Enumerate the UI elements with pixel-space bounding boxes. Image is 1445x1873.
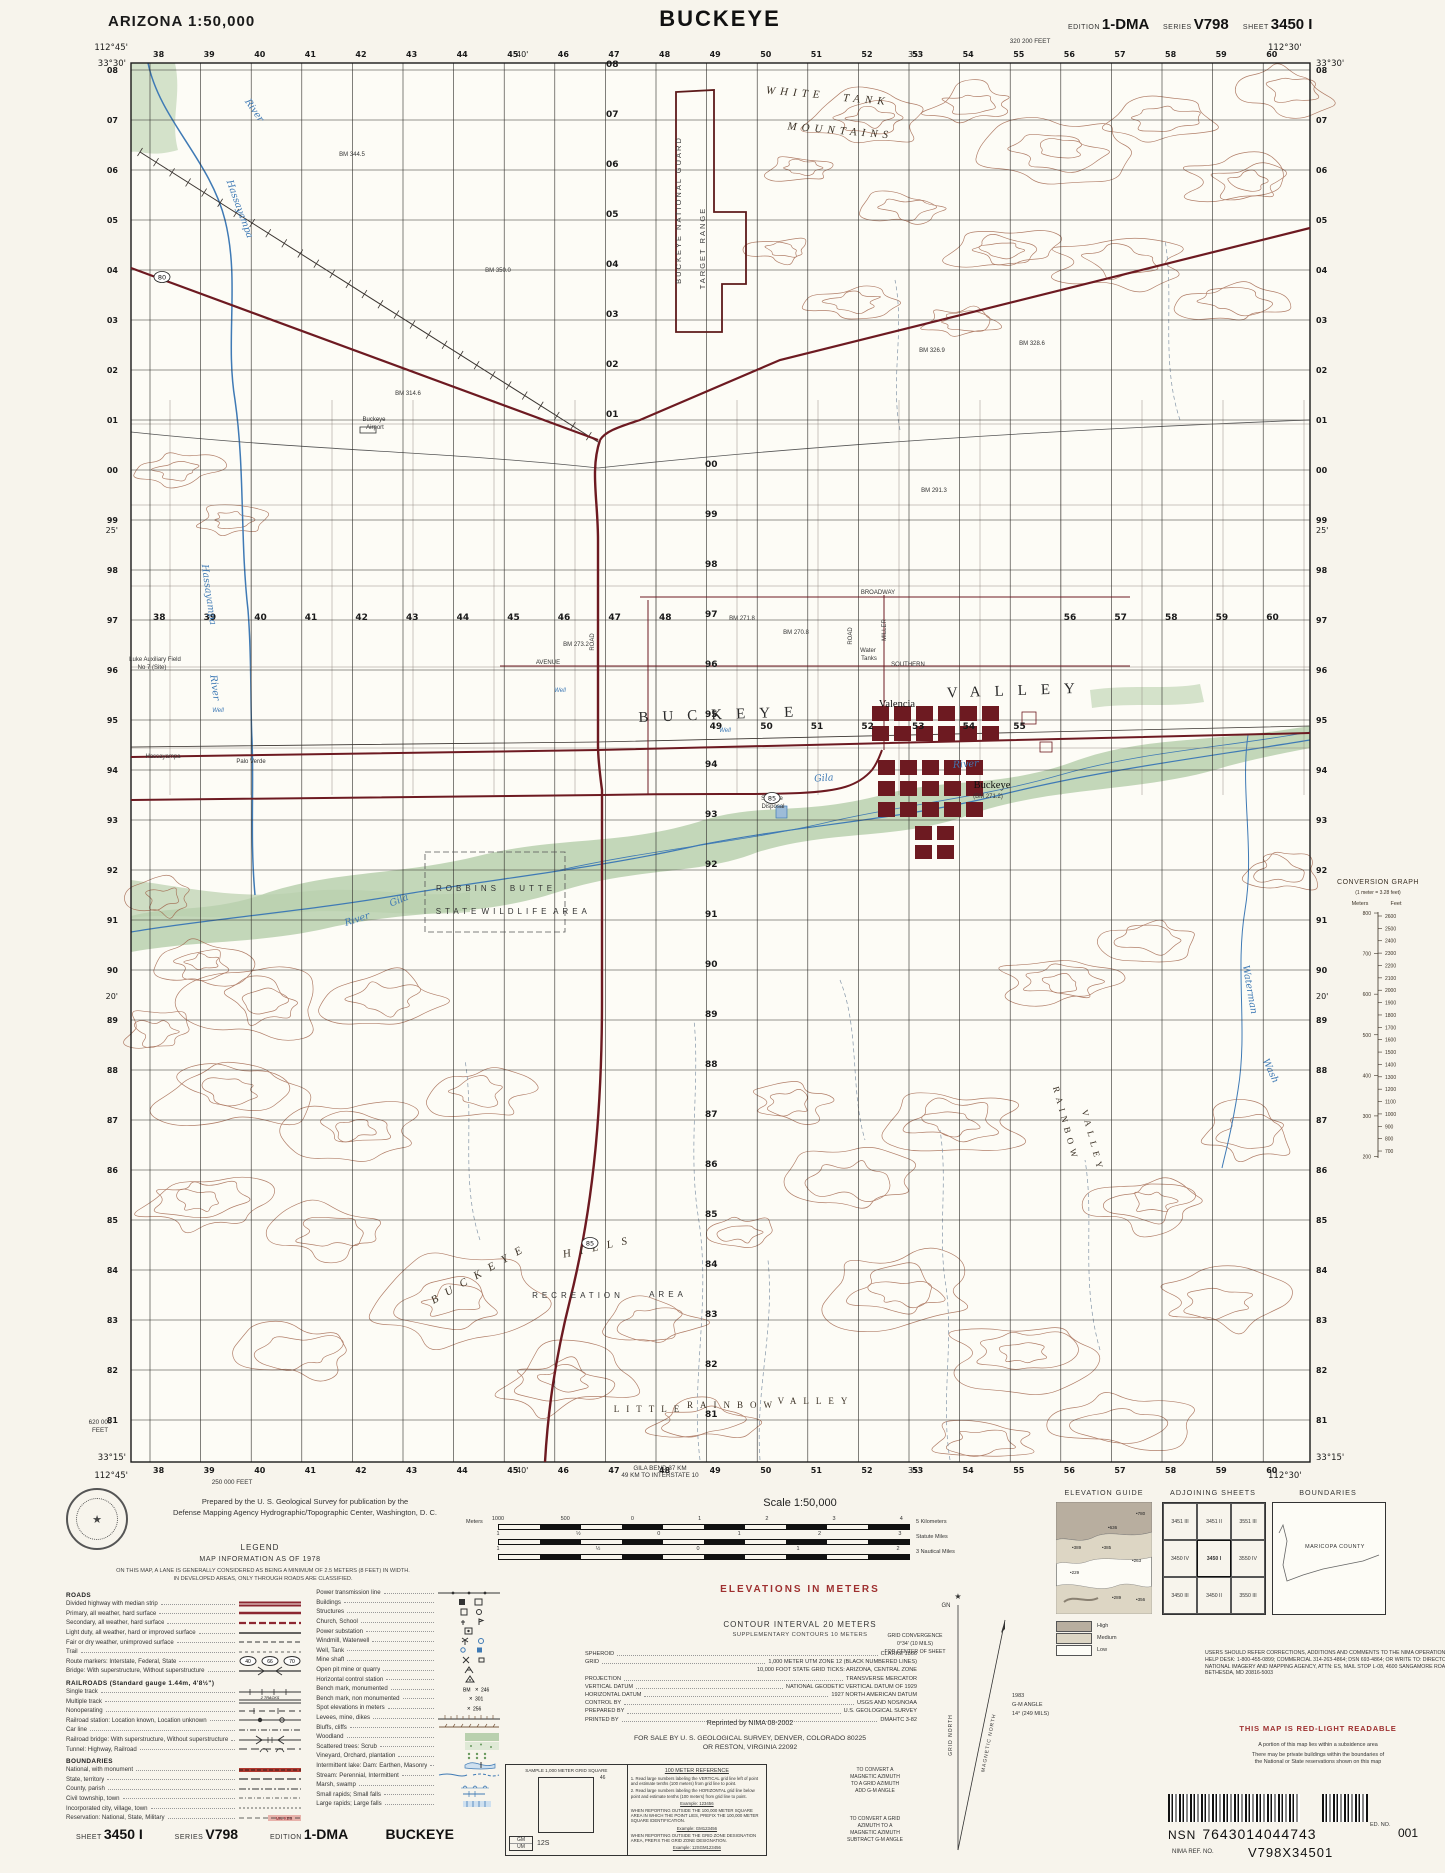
legend-symbol-levee xyxy=(437,1713,501,1723)
legend-item-features: Power transmission line xyxy=(316,1588,501,1598)
map-label-bm-270-8: BM 270.8 xyxy=(783,630,809,636)
legend-symbol-hcs xyxy=(437,1674,501,1684)
map-label-recreation: RECREATION xyxy=(532,1291,624,1300)
map-label-bm-273-2: BM 273.2 xyxy=(563,642,589,648)
legend-swatch xyxy=(1056,1633,1092,1644)
svg-text:25': 25' xyxy=(106,526,118,535)
legend-item-features: Levees, mine, dikes xyxy=(316,1713,501,1723)
svg-text:33°30': 33°30' xyxy=(98,59,126,69)
svg-text:03: 03 xyxy=(107,316,118,325)
map-label-water: Water xyxy=(860,648,876,654)
legend-leader xyxy=(350,1726,435,1728)
datum-label: HORIZONTAL DATUM xyxy=(585,1691,641,1699)
svg-text:41: 41 xyxy=(305,50,317,59)
legend-item-roads: Car line xyxy=(66,1725,302,1735)
map-label-robbins: ROBBINS xyxy=(436,884,500,893)
legend-symbol-light xyxy=(238,1628,302,1638)
scale-title: Scale 1:50,000 xyxy=(700,1497,900,1509)
legend-leader xyxy=(159,1612,235,1614)
svg-text:112°45': 112°45' xyxy=(94,1471,128,1481)
svg-text:47: 47 xyxy=(608,50,619,59)
svg-text:40: 40 xyxy=(254,50,266,59)
map-label-bm-314-6: BM 314.6 xyxy=(395,391,421,397)
svg-text:57: 57 xyxy=(1114,1466,1125,1475)
map-label-bm-326-9: BM 326.9 xyxy=(919,348,945,354)
legend-leader xyxy=(107,1778,235,1780)
scale-tick: 2 xyxy=(818,1531,821,1537)
legend-info: MAP INFORMATION AS OF 1978 xyxy=(60,1556,460,1563)
legend-leader xyxy=(366,1630,434,1632)
adjoining-sheet-3550-iv: 3550 IV xyxy=(1231,1540,1265,1577)
svg-text:58: 58 xyxy=(1165,613,1178,623)
svg-text:85: 85 xyxy=(705,1210,718,1220)
legend-item-label: Incorporated city, village, town xyxy=(66,1805,148,1812)
elevation-guide-legend: HighMediumLow xyxy=(1056,1620,1117,1656)
svg-text:81: 81 xyxy=(1316,1416,1328,1425)
adjoining-sheet-3551-iii: 3551 III xyxy=(1231,1503,1265,1540)
sample-grid-title: SAMPLE 1,000 METER GRID SQUARE xyxy=(509,1768,624,1773)
legend-leader xyxy=(140,1748,235,1750)
svg-text:1400: 1400 xyxy=(1385,1062,1396,1068)
map-label-area: AREA xyxy=(553,907,591,916)
elevation-guide-title: ELEVATION GUIDE xyxy=(1046,1488,1162,1497)
legend-item-label: Fair or dry weather, unimproved surface xyxy=(66,1639,174,1646)
svg-text:89: 89 xyxy=(705,1010,718,1020)
svg-text:TO CONVERT A GRID: TO CONVERT A GRID xyxy=(850,1816,901,1822)
svg-text:40': 40' xyxy=(516,50,528,59)
reference-line: Example: GM123456 xyxy=(631,1826,763,1831)
svg-text:14° (249 MILS): 14° (249 MILS) xyxy=(1012,1711,1049,1717)
legend-item-features: Buildings xyxy=(316,1598,501,1608)
svg-text:48: 48 xyxy=(659,50,671,59)
svg-text:82: 82 xyxy=(1316,1366,1327,1375)
svg-text:05: 05 xyxy=(1316,216,1328,225)
sheet-label: SHEET xyxy=(1243,24,1269,31)
map-label-well: Well xyxy=(212,708,224,714)
legend-item-label: Mine shaft xyxy=(316,1656,344,1663)
subsidence-note: A portion of this map lies within a subs… xyxy=(1188,1742,1445,1766)
credits-line1: Prepared by the U. S. Geological Survey … xyxy=(140,1496,470,1507)
datum-leader xyxy=(627,1713,840,1714)
legend-item-label: Single track xyxy=(66,1688,98,1695)
svg-text:57: 57 xyxy=(1114,613,1127,623)
elevation-guide-legend-medium: Medium xyxy=(1056,1632,1117,1644)
svg-text:85: 85 xyxy=(768,794,776,802)
svg-text:51: 51 xyxy=(811,1466,823,1475)
legend-swatch xyxy=(1056,1621,1092,1632)
users-correction-note: USERS SHOULD REFER CORRECTIONS, ADDITION… xyxy=(1205,1650,1445,1677)
subsidence-line: A portion of this map lies within a subs… xyxy=(1188,1742,1445,1749)
legend-leader xyxy=(151,1807,236,1809)
route-shield-85: 85 xyxy=(582,1238,598,1249)
legend-item-features: Small rapids; Small falls xyxy=(316,1789,501,1799)
map-label--bm-271-2-: (BM 271.2) xyxy=(973,794,1003,800)
legend-symbol-substa xyxy=(437,1626,501,1636)
legend-item-label: Secondary, all weather, hard surface xyxy=(66,1619,164,1626)
svg-text:★: ★ xyxy=(954,1592,961,1601)
svg-text:88: 88 xyxy=(705,1060,718,1070)
map-label-no-7-site-: No 7 (Site) xyxy=(138,665,167,671)
legend-swatch-label: Medium xyxy=(1097,1635,1117,1641)
scale-bar-segments xyxy=(498,1539,910,1545)
scale-bars: Meters1000500012345 Kilometers1½0123Stat… xyxy=(470,1516,1030,1561)
svg-text:99: 99 xyxy=(1316,516,1328,525)
legend-item-label: Railroad station: Location known, Locati… xyxy=(66,1717,207,1724)
svg-text:700: 700 xyxy=(1363,952,1372,958)
legend-item-features: Scattered trees: Scrub xyxy=(316,1742,501,1752)
svg-text:20': 20' xyxy=(106,992,118,1001)
legend-swatch-label: High xyxy=(1097,1623,1108,1629)
svg-text:400: 400 xyxy=(1363,1073,1372,1079)
legend-item-roads: Secondary, all weather, hard surface xyxy=(66,1618,302,1628)
legend-leader xyxy=(210,1719,236,1721)
legend-leader xyxy=(372,1640,434,1642)
map-label-well: Well xyxy=(719,728,731,734)
svg-text:52: 52 xyxy=(861,50,872,59)
sheet-value: 3450 I xyxy=(1271,16,1313,33)
legend-item-roads: Route markers: Interstate, Federal, Stat… xyxy=(66,1657,302,1667)
reference-line: WHEN REPORTING OUTSIDE THE GRID ZONE DES… xyxy=(631,1833,763,1843)
svg-text:112°30': 112°30' xyxy=(1268,43,1302,53)
legend-leader xyxy=(359,1784,434,1786)
scale-tick: 2 xyxy=(765,1516,768,1522)
svg-text:1300: 1300 xyxy=(1385,1075,1396,1081)
scale-tick: 0 xyxy=(631,1516,634,1522)
legend-symbol-bndstate xyxy=(238,1774,302,1784)
svg-text:42: 42 xyxy=(355,50,366,59)
svg-text:90: 90 xyxy=(1316,966,1328,975)
datum-leader xyxy=(602,1663,765,1664)
legend-symbol-tunnel xyxy=(238,1744,302,1754)
svg-text:×: × xyxy=(475,1687,479,1693)
svg-text:0°34' (10 MILS): 0°34' (10 MILS) xyxy=(897,1641,933,1647)
scale-bar-2: 1½0123 Nautical Miles xyxy=(470,1546,1030,1561)
sample-grid-box: SAMPLE 1,000 METER GRID SQUARE 46 GM UM … xyxy=(505,1764,628,1856)
legend-leader xyxy=(179,1660,235,1662)
svg-text:88: 88 xyxy=(1316,1066,1328,1075)
svg-text:81: 81 xyxy=(705,1410,718,1420)
map-label-miller: MILLER xyxy=(882,619,888,641)
svg-text:1100: 1100 xyxy=(1385,1100,1396,1106)
svg-text:05: 05 xyxy=(606,210,619,220)
footer-series-value: V798 xyxy=(205,1826,238,1842)
svg-text:59: 59 xyxy=(1216,50,1228,59)
map-label-bm-344-5: BM 344.5 xyxy=(339,152,365,158)
legend-leader xyxy=(373,1717,434,1719)
svg-text:54: 54 xyxy=(963,1466,975,1475)
map-label-broadway: BROADWAY xyxy=(861,590,895,596)
svg-text:55: 55 xyxy=(1013,1466,1025,1475)
svg-text:08: 08 xyxy=(606,60,619,70)
legend-item-roads: Divided highway with median strip xyxy=(66,1599,302,1609)
svg-text:56: 56 xyxy=(1064,613,1077,623)
legend-item-label: Tunnel: Highway, Railroad xyxy=(66,1746,137,1753)
map-label-avenue: AVENUE xyxy=(536,660,560,666)
elevation-guide-legend-high: High xyxy=(1056,1620,1117,1632)
legend-item-roads: National, with monument xyxy=(66,1765,302,1775)
legend-leader xyxy=(385,1803,435,1805)
svg-text:96: 96 xyxy=(705,660,718,670)
svg-text:83: 83 xyxy=(705,1310,718,1320)
svg-text:35': 35' xyxy=(908,1466,920,1475)
svg-text:02: 02 xyxy=(606,360,619,370)
private-line2: the National or State reservations shown… xyxy=(1188,1759,1445,1766)
svg-text:42: 42 xyxy=(355,613,368,623)
datum-leader xyxy=(644,1696,828,1697)
legend-item-label: Intermittent lake: Dam: Earthen, Masonry xyxy=(316,1762,427,1769)
legend-item-roads: Light duty, all weather, hard or improve… xyxy=(66,1628,302,1638)
legend-symbol-rr2: 2 TRACKS xyxy=(238,1696,302,1706)
svg-text:00: 00 xyxy=(705,460,718,470)
legend-item-features: Well, Tank xyxy=(316,1646,501,1656)
legend-item-label: Stream: Perennial, Intermittent xyxy=(316,1772,399,1779)
svg-text:FOR CENTER OF SHEET: FOR CENTER OF SHEET xyxy=(884,1649,946,1655)
legend-item-roads: Primary, all weather, hard surface xyxy=(66,1609,302,1619)
legend-leader xyxy=(199,1632,236,1634)
legend-symbol-windmill xyxy=(437,1636,501,1646)
legend-item-roads: Railroad station: Location known, Locati… xyxy=(66,1716,302,1726)
adjoining-sheet-3450-iv: 3450 IV xyxy=(1163,1540,1197,1577)
map-label-tanks: Tanks xyxy=(861,656,877,662)
scale-tick: 3 xyxy=(833,1516,836,1522)
svg-text:90: 90 xyxy=(107,966,119,975)
legend-leader xyxy=(177,1641,236,1643)
svg-text:40: 40 xyxy=(245,1659,251,1665)
legend-item-features: Stream: Perennial, Intermittent xyxy=(316,1770,501,1780)
legend-leader xyxy=(167,1622,235,1624)
legend-item-label: Bench mark, monumented xyxy=(316,1685,387,1692)
legend-symbol-bndcity xyxy=(238,1803,302,1813)
map-label-valley: VALLEY xyxy=(778,1396,855,1406)
svg-text:98: 98 xyxy=(1316,566,1328,575)
scale-tick: 2 xyxy=(896,1546,899,1552)
legend-symbol-bndcounty xyxy=(238,1784,302,1794)
svg-text:59: 59 xyxy=(1216,1466,1228,1475)
map-label-luke-auxiliary-field: Luke Auxiliary Field xyxy=(129,657,181,663)
nima-ref-label: NIMA REF. NO. xyxy=(1172,1849,1214,1855)
legend-leader xyxy=(123,1797,236,1799)
map-label-buckeye-national-guard: BUCKEYE NATIONAL GUARD xyxy=(674,136,683,284)
legend-symbol-bm2: ×301 xyxy=(437,1693,501,1703)
svg-text:93: 93 xyxy=(705,810,718,820)
datum-label: GRID xyxy=(585,1658,599,1666)
footer-edition-value: 1-DMA xyxy=(304,1826,348,1842)
series-label: SERIES xyxy=(1163,24,1192,31)
svg-text:95: 95 xyxy=(107,716,119,725)
svg-text:83: 83 xyxy=(107,1316,118,1325)
legend-symbol-spot: ×256 xyxy=(437,1703,501,1713)
legend-item-label: Spot elevations in meters xyxy=(316,1704,384,1711)
legend-symbol-trail xyxy=(238,1647,302,1657)
svg-text:2000: 2000 xyxy=(1385,988,1396,994)
svg-text:97: 97 xyxy=(1316,616,1327,625)
legend-symbol-wood xyxy=(437,1732,501,1742)
boundaries-title: BOUNDARIES xyxy=(1272,1488,1384,1497)
legend-symbol-church xyxy=(437,1617,501,1627)
legend-symbol-bm1: BM×246 xyxy=(437,1684,501,1694)
svg-text:86: 86 xyxy=(107,1166,119,1175)
svg-text:1500: 1500 xyxy=(1385,1050,1396,1056)
legend-leader xyxy=(347,1611,434,1613)
elevation-guide-value: •356 xyxy=(1136,1597,1146,1602)
svg-text:04: 04 xyxy=(1316,266,1328,275)
edition-label: EDITION xyxy=(1068,24,1100,31)
legend-symbol-hwy2 xyxy=(238,1599,302,1609)
svg-text:06: 06 xyxy=(107,166,119,175)
conversion-graph: CONVERSION GRAPH(1 meter = 3.28 feet)Met… xyxy=(1337,879,1419,1160)
legend-item-features: Bluffs, cliffs xyxy=(316,1722,501,1732)
legend-note-2: IN DEVELOPED AREAS, ONLY THROUGH ROADS A… xyxy=(48,1576,478,1584)
svg-text:33°15': 33°15' xyxy=(1316,1453,1344,1463)
svg-text:03: 03 xyxy=(606,310,619,320)
legend-symbol-scrub xyxy=(437,1741,501,1751)
svg-text:CONVERSION GRAPH: CONVERSION GRAPH xyxy=(1337,879,1419,886)
usgs-seal: ★ xyxy=(66,1488,128,1550)
legend-columns: ROADSDivided highway with median stripPr… xyxy=(66,1588,486,1822)
legend-item-features: Structures xyxy=(316,1607,501,1617)
legend-symbol-well xyxy=(437,1645,501,1655)
legend-leader xyxy=(347,1659,434,1661)
boundaries-county-label: MARICOPA COUNTY xyxy=(1305,1544,1365,1550)
svg-text:2400: 2400 xyxy=(1385,939,1396,945)
svg-text:250 000 FEET: 250 000 FEET xyxy=(212,1479,253,1486)
scale-tick: 0 xyxy=(657,1531,660,1537)
map-label-bm-271-8: BM 271.8 xyxy=(729,616,755,622)
legend-item-label: Route markers: Interstate, Federal, Stat… xyxy=(66,1658,176,1665)
map-label-target-range: TARGET RANGE xyxy=(698,207,707,289)
legend-item-roads: Fair or dry weather, unimproved surface xyxy=(66,1637,302,1647)
svg-text:700: 700 xyxy=(1385,1149,1394,1155)
svg-text:53: 53 xyxy=(912,722,925,732)
legend-leader xyxy=(90,1729,235,1731)
legend-col-symbols: Power transmission lineBuildingsStructur… xyxy=(316,1588,501,1822)
legend-item-label: Large rapids; Large falls xyxy=(316,1800,381,1807)
legend-item-label: Well, Tank xyxy=(316,1647,344,1654)
svg-text:94: 94 xyxy=(1316,766,1328,775)
legend-item-roads: County, parish xyxy=(66,1784,302,1794)
legend-symbol-bldg xyxy=(437,1597,501,1607)
datum-label: CONTROL BY xyxy=(585,1699,621,1707)
grid-zone-value: 12S xyxy=(537,1840,549,1847)
svg-text:47: 47 xyxy=(608,613,621,623)
map-label-river: River xyxy=(952,758,981,771)
legend-item-roads: Nonoperating xyxy=(66,1706,302,1716)
legend-item-label: Vineyard, Orchard, plantation xyxy=(316,1752,395,1759)
legend-item-label: Trail xyxy=(66,1648,78,1655)
legend-title: LEGEND xyxy=(60,1543,460,1552)
svg-text:40: 40 xyxy=(254,1466,266,1475)
svg-text:66: 66 xyxy=(267,1659,273,1665)
ed-no-value: 001 xyxy=(1398,1826,1418,1840)
usgs-seal-star: ★ xyxy=(76,1498,118,1540)
svg-text:38: 38 xyxy=(153,50,165,59)
svg-text:(1 meter = 3.28 feet): (1 meter = 3.28 feet) xyxy=(1355,890,1401,896)
svg-text:56: 56 xyxy=(1064,1466,1076,1475)
svg-text:49: 49 xyxy=(710,1466,722,1475)
legend-leader xyxy=(344,1601,434,1603)
svg-text:52: 52 xyxy=(861,722,874,732)
svg-text:300: 300 xyxy=(1363,1114,1372,1120)
svg-text:84: 84 xyxy=(1316,1266,1328,1275)
svg-text:50: 50 xyxy=(760,722,773,732)
legend-item-label: Light duty, all weather, hard or improve… xyxy=(66,1629,196,1636)
svg-text:800: 800 xyxy=(1385,1137,1394,1143)
legend-leader xyxy=(386,1678,434,1680)
svg-text:88: 88 xyxy=(107,1066,119,1075)
legend-item-features: Bench mark, non monumented×301 xyxy=(316,1694,501,1704)
adjoining-sheets-grid: 3451 III3451 II3551 III3450 IV3450 I3550… xyxy=(1162,1502,1266,1615)
svg-text:ADD G-M ANGLE: ADD G-M ANGLE xyxy=(855,1788,895,1794)
svg-text:95: 95 xyxy=(1316,716,1328,725)
datum-leader xyxy=(624,1680,843,1681)
svg-text:48: 48 xyxy=(659,613,672,623)
legend-item-label: Reservation: National, State, Military xyxy=(66,1814,165,1821)
legend-symbol-quarry xyxy=(437,1665,501,1675)
elevation-guide-value: •780 xyxy=(1136,1511,1146,1516)
legend-symbol-rrbridge xyxy=(238,1735,302,1745)
legend-header: BOUNDARIES xyxy=(66,1754,302,1765)
svg-text:54: 54 xyxy=(963,722,976,732)
svg-text:600: 600 xyxy=(1363,992,1372,998)
nima-ref-value: V798X34501 xyxy=(1248,1845,1333,1860)
scale-bar-unit: 5 Kilometers xyxy=(916,1519,947,1525)
grid-reference-boxes: SAMPLE 1,000 METER GRID SQUARE 46 GM UM … xyxy=(505,1764,767,1856)
svg-text:800: 800 xyxy=(1363,911,1372,917)
legend-leader xyxy=(161,1603,235,1605)
scale-bar-unit: 3 Nautical Miles xyxy=(916,1549,955,1555)
reference-line: WHEN REPORTING OUTSIDE THE 100,000 METER… xyxy=(631,1808,763,1824)
legend-symbol-rapidsl xyxy=(437,1799,501,1809)
svg-text:50: 50 xyxy=(760,1466,772,1475)
svg-text:BM: BM xyxy=(463,1687,471,1693)
legend-item-label: Church, School xyxy=(316,1618,358,1625)
svg-text:86: 86 xyxy=(1316,1166,1328,1175)
svg-text:G-M ANGLE: G-M ANGLE xyxy=(1012,1702,1043,1708)
svg-text:2300: 2300 xyxy=(1385,951,1396,957)
svg-text:99: 99 xyxy=(107,516,119,525)
svg-text:87: 87 xyxy=(705,1110,718,1120)
svg-text:2200: 2200 xyxy=(1385,963,1396,969)
legend-leader xyxy=(81,1651,236,1653)
legend-note: ON THIS MAP, A LANE IS GENERALLY CONSIDE… xyxy=(48,1568,478,1583)
svg-text:MAGNETIC AZIMUTH: MAGNETIC AZIMUTH xyxy=(850,1830,900,1836)
legend-symbol-orchard xyxy=(437,1751,501,1761)
svg-text:33°15': 33°15' xyxy=(98,1453,126,1463)
legend-leader xyxy=(430,1764,434,1766)
legend-item-label: Bridge: With superstructure, Without sup… xyxy=(66,1667,205,1674)
svg-text:02: 02 xyxy=(107,366,118,375)
svg-text:1600: 1600 xyxy=(1385,1038,1396,1044)
svg-text:1000: 1000 xyxy=(1385,1112,1396,1118)
legend-symbol-mine xyxy=(437,1655,501,1665)
legend-leader xyxy=(380,1745,434,1747)
legend-item-features: Marsh, swamp xyxy=(316,1780,501,1790)
map-label-road: ROAD xyxy=(848,627,854,645)
svg-text:900: 900 xyxy=(1385,1124,1394,1130)
map-label-little: LITTLE xyxy=(614,1404,687,1414)
header-edition-block: EDITION1-DMA SERIESV798 SHEET3450 I xyxy=(1058,16,1312,33)
scale-bar-segments xyxy=(498,1554,910,1560)
svg-text:04: 04 xyxy=(107,266,119,275)
svg-text:01: 01 xyxy=(1316,416,1328,425)
reference-line: 1. Read large numbers labeling the VERTI… xyxy=(631,1776,763,1786)
elevation-guide-value: •636 xyxy=(1108,1525,1118,1530)
elevation-guide-value: •385 xyxy=(1102,1545,1112,1550)
legend-symbol-struct xyxy=(437,1607,501,1617)
map-label-palo-verde: Palo Verde xyxy=(236,759,266,765)
legend-leader xyxy=(347,1736,435,1738)
hundred-meter-reference-box: 100 METER REFERENCE 1. Read large number… xyxy=(628,1764,767,1856)
